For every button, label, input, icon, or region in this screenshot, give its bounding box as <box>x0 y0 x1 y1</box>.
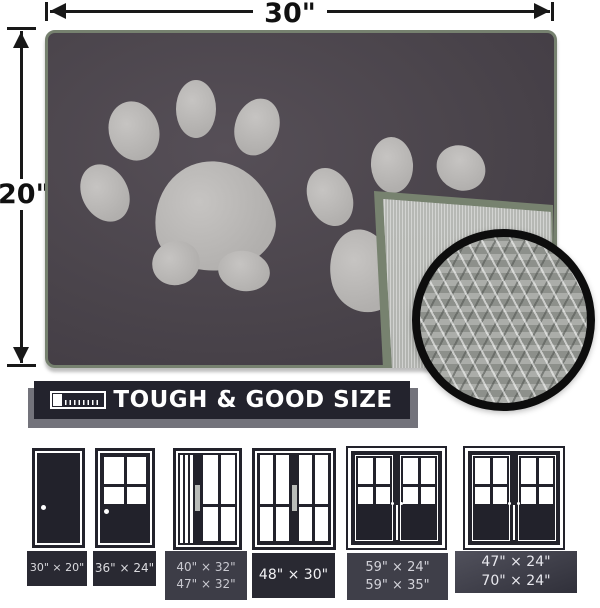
product-infographic: 30" 20" TOUGH & <box>0 0 600 608</box>
size-text: 70" × 24" <box>481 572 550 591</box>
paw-pad <box>322 223 404 319</box>
door-window <box>104 457 146 504</box>
door-handle-dot <box>508 502 511 505</box>
size-text: 59" × 24" <box>365 559 429 577</box>
door-leaf <box>258 453 291 543</box>
arrowhead-up-icon <box>13 32 29 48</box>
door-knob <box>41 505 46 510</box>
width-tick-right <box>551 2 554 21</box>
arrowhead-left-icon <box>50 3 66 19</box>
size-text: 40" × 32" <box>176 559 235 575</box>
door-with-sidelight <box>173 448 242 550</box>
door-half-glass <box>95 448 155 548</box>
door-slab <box>354 454 439 542</box>
height-dimension-label: 20" <box>0 179 46 210</box>
door-slab <box>471 454 557 542</box>
door-solid <box>32 448 85 548</box>
arrowhead-right-icon <box>534 3 550 19</box>
door-slab <box>176 451 239 547</box>
paw-toe <box>298 161 361 233</box>
width-dimension-label: 30" <box>253 0 327 29</box>
size-text: 59" × 35" <box>365 577 429 595</box>
door-leaf <box>355 455 393 541</box>
size-text: 48" × 30" <box>259 566 328 585</box>
paw-toe <box>71 156 140 231</box>
backing-texture-magnifier <box>412 229 595 411</box>
size-text: 36" × 24" <box>95 560 154 576</box>
door-window <box>201 453 237 543</box>
door-double-patio <box>346 446 447 550</box>
size-label: 40" × 32" 47" × 32" <box>165 551 247 600</box>
door-handle <box>195 485 200 511</box>
size-text: 30" × 20" <box>30 561 84 576</box>
door-slab <box>35 451 82 545</box>
door-window <box>475 458 507 504</box>
door-center-divider <box>513 505 515 540</box>
door-slab <box>98 451 152 545</box>
ruler-icon <box>50 391 106 409</box>
paw-toe <box>429 137 494 199</box>
size-text: 47" × 32" <box>176 576 235 592</box>
door-leaf <box>472 455 510 541</box>
door-slab <box>255 451 333 547</box>
door-leaf <box>297 453 330 543</box>
size-label: 47" × 24" 70" × 24" <box>455 551 577 593</box>
door-window <box>403 458 435 504</box>
size-label: 48" × 30" <box>252 553 335 598</box>
size-label: 36" × 24" <box>93 551 156 586</box>
door-double-patio-wide <box>463 446 565 550</box>
paw-toe <box>176 80 216 138</box>
arrowhead-down-icon <box>13 347 29 363</box>
door-leaf <box>518 455 556 541</box>
door-handle <box>292 485 297 511</box>
size-label: 30" × 20" <box>27 551 87 586</box>
width-tick-left <box>45 2 48 21</box>
door-center-divider <box>396 505 398 540</box>
height-tick-top <box>7 27 36 30</box>
paw-toe <box>101 95 167 168</box>
door-window <box>521 458 553 504</box>
feature-banner: TOUGH & GOOD SIZE <box>34 381 410 419</box>
height-tick-bottom <box>7 364 36 367</box>
paw-toe <box>369 136 415 195</box>
size-text: 47" × 24" <box>481 553 550 572</box>
door-sidelight <box>179 454 194 544</box>
door-french <box>252 448 336 550</box>
paw-toe <box>227 93 287 162</box>
size-label: 59" × 24" 59" × 35" <box>347 553 448 600</box>
door-knob <box>104 509 109 514</box>
door-leaf <box>400 455 438 541</box>
banner-title: TOUGH & GOOD SIZE <box>106 387 410 413</box>
door-window <box>358 458 390 504</box>
